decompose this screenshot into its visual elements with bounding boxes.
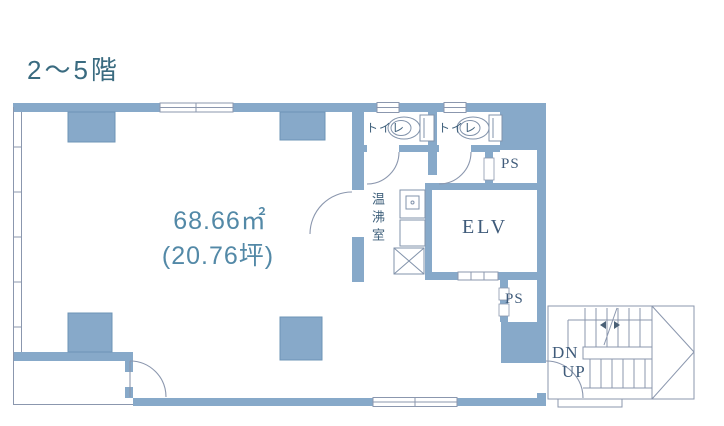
stair-landing: [583, 347, 652, 359]
room-label-ps-upper: PS: [501, 156, 520, 173]
column: [68, 112, 115, 142]
wall-bottom: [133, 398, 546, 406]
floor-title: 2〜5階: [27, 50, 120, 87]
floor-plan-canvas: 2〜5階 68.66㎡ (20.76坪) トイレ トイレ PS 温沸室 ELV …: [0, 0, 724, 426]
stair-winder-line: [652, 352, 694, 399]
room-label-elevator: ELV: [449, 216, 521, 239]
fixtures: [388, 115, 502, 274]
column: [68, 313, 112, 352]
elevator-door: [458, 272, 498, 280]
toilet-tank: [420, 115, 434, 141]
room-label-toilet-2: トイレ: [438, 119, 477, 136]
door-arc-toilet-1: [367, 152, 399, 184]
doorway-hot-water: [351, 190, 365, 237]
area-label-m2: 68.66㎡: [140, 201, 300, 237]
stair-winder-line: [652, 306, 694, 352]
door-arc-bottom-left: [130, 361, 166, 397]
door-ps-upper: [484, 158, 494, 180]
room-label-toilet-1: トイレ: [366, 119, 405, 136]
stair-label-up: UP: [562, 362, 586, 382]
doorway-toilet-1: [367, 144, 399, 153]
stair-arrowhead-icon: [600, 321, 606, 329]
counter: [400, 220, 425, 246]
wall-bottom-left: [13, 352, 133, 361]
toilet-tank: [489, 115, 502, 141]
door-arc-toilet-2: [439, 152, 471, 184]
wall-top-left: [13, 103, 160, 112]
wall-core-left-lower: [352, 237, 364, 282]
stair-label-down: DN: [552, 343, 579, 363]
column: [280, 112, 325, 140]
column: [280, 317, 322, 360]
wall-elv-left: [425, 183, 432, 280]
door-post: [125, 387, 133, 398]
area-label-tsubo: (20.76坪): [133, 236, 303, 272]
stair-outline-notch: [558, 399, 622, 407]
stair-arrowhead-icon: [614, 321, 620, 329]
door-arc-hot-water: [310, 192, 352, 234]
sink-drain: [411, 201, 414, 204]
doorway-toilet-2: [439, 144, 471, 153]
wall-corner-bottomright: [501, 322, 546, 363]
door-post: [125, 361, 133, 372]
wall-top-center: [233, 103, 365, 112]
room-label-hot-water: 温沸室: [368, 192, 387, 276]
room-label-ps-lower: PS: [505, 291, 524, 308]
